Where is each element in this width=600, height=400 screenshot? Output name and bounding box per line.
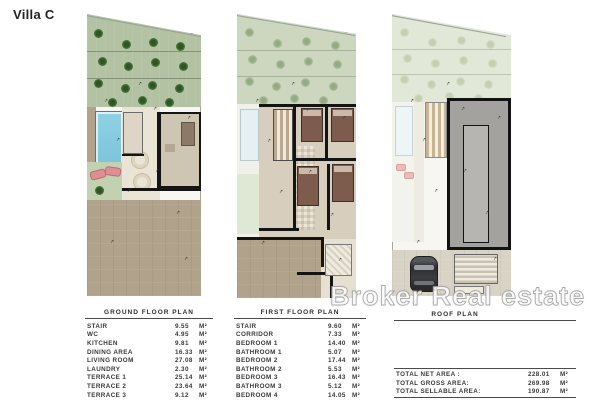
elevation-marker-icon: ↗ <box>260 241 265 247</box>
table-icon <box>165 144 175 152</box>
room-label: BEDROOM 1 <box>234 340 328 347</box>
wall <box>297 272 325 275</box>
area-row: BATHROOM 35.12M² <box>234 382 366 391</box>
tree-icon <box>403 54 412 63</box>
area-value: 9.12 <box>175 392 199 399</box>
garden-area <box>87 14 201 107</box>
area-row: BATHROOM 25.53M² <box>234 365 366 374</box>
tree-icon <box>273 39 282 48</box>
room-label: STAIR <box>85 323 175 330</box>
elevation-marker-icon: ↗ <box>184 256 189 262</box>
area-unit: M² <box>199 331 213 338</box>
area-row: TERRACE 125.14M² <box>85 374 213 383</box>
staircase <box>273 109 293 161</box>
area-row: LAUNDRY2.30M² <box>85 365 213 374</box>
tree-icon <box>290 94 299 103</box>
room-label: STAIR <box>234 323 328 330</box>
room-label: BATHROOM 1 <box>234 349 328 356</box>
area-unit: M² <box>199 340 213 347</box>
room-label: TOTAL SELLABLE AREA: <box>394 388 528 395</box>
tree-icon <box>302 37 311 46</box>
area-row: TERRACE 39.12M² <box>85 391 213 400</box>
elevation-marker-icon: ↗ <box>127 189 132 195</box>
table-rule <box>85 318 213 319</box>
tree-icon <box>488 59 497 68</box>
area-row: LIVING ROOM27.08M² <box>85 356 213 365</box>
tree-icon <box>122 40 131 49</box>
room-label: BATHROOM 2 <box>234 366 328 373</box>
bed-icon <box>332 164 354 202</box>
area-unit: M² <box>199 374 213 381</box>
tree-icon <box>176 42 185 51</box>
ground-floor-plan-drawing: ↗↗↗↗↗↗↗↗↗↗ <box>87 14 201 296</box>
tree-icon <box>175 84 184 93</box>
room-label: BATHROOM 3 <box>234 383 328 390</box>
totals-box: TOTAL NET AREA :228.01M²TOTAL GROSS AREA… <box>394 368 576 398</box>
tree-icon <box>431 59 440 68</box>
area-unit: M² <box>352 392 366 399</box>
tree-icon <box>459 56 468 65</box>
table-title: ROOF PLAN <box>394 311 576 318</box>
area-rows: STAIR9.55M²WC4.95M²KITCHEN9.81M²DINING A… <box>85 322 213 399</box>
elevation-marker-icon: ↗ <box>433 189 438 195</box>
tree-icon <box>188 25 197 34</box>
area-row: DINING AREA16.33M² <box>85 348 213 357</box>
lawn-patch-below <box>237 174 259 234</box>
area-unit: M² <box>199 357 213 364</box>
lawn-patch <box>87 162 122 200</box>
elevation-marker-icon: ↗ <box>410 98 415 104</box>
elevation-marker-icon: ↗ <box>255 99 260 105</box>
sofa-icon <box>181 122 195 146</box>
tree-icon <box>329 82 338 91</box>
area-value: 14.40 <box>328 340 352 347</box>
sun-lounger-icon <box>104 166 121 177</box>
tree-icon <box>304 57 313 66</box>
living-room <box>159 112 201 188</box>
area-value: 23.64 <box>175 383 199 390</box>
room-label: TERRACE 3 <box>85 392 175 399</box>
room-label: CORRIDOR <box>234 331 328 338</box>
tree-icon <box>400 28 409 37</box>
area-row: TOTAL SELLABLE AREA:190.87M² <box>394 387 576 395</box>
area-row: BEDROOM 316.43M² <box>234 374 366 383</box>
tree-icon <box>148 81 157 90</box>
elevation-marker-icon: ↗ <box>306 107 311 113</box>
wall <box>122 188 201 191</box>
area-unit: M² <box>352 331 366 338</box>
tree-icon <box>165 98 174 107</box>
room-label: TERRACE 2 <box>85 383 175 390</box>
tree-icon <box>245 28 254 37</box>
table-title: GROUND FLOOR PLAN <box>85 309 213 316</box>
elevation-marker-icon: ↗ <box>421 138 426 144</box>
wall <box>122 154 144 156</box>
elevation-marker-icon: ↗ <box>104 98 109 104</box>
tree-icon <box>248 55 257 64</box>
room-label: TOTAL NET AREA : <box>394 371 528 378</box>
area-value: 27.08 <box>175 357 199 364</box>
roof-slab <box>447 98 511 250</box>
kitchen-room <box>123 112 143 154</box>
area-value: 5.53 <box>328 366 352 373</box>
area-value: 4.95 <box>175 331 199 338</box>
area-value: 2.30 <box>175 366 199 373</box>
terrace-roof-below <box>237 239 321 298</box>
tree-icon <box>151 58 160 67</box>
floor-plan-sheet: Villa C ↗↗↗↗↗↗↗↗↗↗ <box>0 0 600 400</box>
area-unit: M² <box>352 366 366 373</box>
watermark: Broker Real estate <box>330 281 585 312</box>
area-unit: M² <box>352 340 366 347</box>
tree-icon <box>98 57 107 66</box>
garden-area-faded <box>237 14 356 104</box>
exterior-stairs <box>454 254 498 284</box>
room-label: DINING AREA <box>85 349 175 356</box>
elevation-marker-icon: ↗ <box>493 256 498 262</box>
tree-icon <box>94 79 103 88</box>
elevation-marker-icon: ↗ <box>496 115 501 121</box>
area-unit: M² <box>352 323 366 330</box>
tree-icon <box>121 84 130 93</box>
room-label: BEDROOM 2 <box>234 357 328 364</box>
area-row: CORRIDOR7.33M² <box>234 331 366 340</box>
tree-icon <box>497 24 506 33</box>
area-unit: M² <box>199 392 213 399</box>
area-unit: M² <box>199 366 213 373</box>
area-row: WC4.95M² <box>85 331 213 340</box>
area-value: 228.01 <box>528 371 560 378</box>
elevation-marker-icon: ↗ <box>266 139 271 145</box>
tree-icon <box>272 82 281 91</box>
elevation-marker-icon: ↗ <box>278 190 283 196</box>
wall <box>325 104 328 160</box>
elevation-marker-icon: ↗ <box>445 81 450 87</box>
area-row: STAIR9.60M² <box>234 322 366 331</box>
area-value: 17.44 <box>328 357 352 364</box>
tree-icon <box>138 96 147 105</box>
first-floor-plan-drawing: ↗↗↗↗↗↗↗↗↗↗ <box>237 14 356 298</box>
first-floor-area-table: FIRST FLOOR PLAN STAIR9.60M²CORRIDOR7.33… <box>234 309 366 400</box>
wall <box>293 158 356 161</box>
area-unit: M² <box>199 349 213 356</box>
tree-icon <box>95 186 104 195</box>
ground-floor-area-table: GROUND FLOOR PLAN STAIR9.55M²WC4.95M²KIT… <box>85 309 213 399</box>
wall <box>321 237 324 267</box>
elevation-marker-icon: ↗ <box>290 82 295 88</box>
area-value: 7.33 <box>328 331 352 338</box>
tree-icon <box>342 24 351 33</box>
area-row: STAIR9.55M² <box>85 322 213 331</box>
room-label: TOTAL GROSS AREA: <box>394 380 528 387</box>
tree-icon <box>245 77 254 86</box>
room-label: BEDROOM 3 <box>234 374 328 381</box>
area-value: 9.55 <box>175 323 199 330</box>
room-label: LAUNDRY <box>85 366 175 373</box>
elevation-marker-icon: ↗ <box>341 116 346 122</box>
elevation-marker-icon: ↗ <box>338 258 343 264</box>
room-label: WC <box>85 331 175 338</box>
sun-lounger-icon <box>404 172 414 179</box>
tree-icon <box>301 78 310 87</box>
pergola-slats <box>425 102 447 158</box>
table-rule <box>394 320 576 321</box>
wall <box>293 104 296 230</box>
area-value: 190.87 <box>528 388 560 395</box>
tree-icon <box>457 36 466 45</box>
elevation-marker-icon: ↗ <box>153 107 158 113</box>
tree-icon <box>179 62 188 71</box>
tree-icon <box>484 80 493 89</box>
driveway-terrace <box>87 200 201 296</box>
area-unit: M² <box>199 323 213 330</box>
side-strip <box>414 102 424 242</box>
tree-icon <box>276 60 285 69</box>
area-unit: M² <box>560 371 576 378</box>
tree-icon <box>400 75 409 84</box>
swimming-pool-below <box>240 109 259 161</box>
area-unit: M² <box>560 388 576 395</box>
tree-icon <box>331 41 340 50</box>
page-title: Villa C <box>13 7 55 22</box>
wall <box>157 112 160 190</box>
swimming-pool-below <box>395 106 413 156</box>
tree-icon <box>486 40 495 49</box>
area-value: 5.12 <box>328 383 352 390</box>
tree-icon <box>149 38 158 47</box>
area-row: TOTAL NET AREA :228.01M² <box>394 371 576 379</box>
bed-icon <box>331 108 354 142</box>
area-value: 16.33 <box>175 349 199 356</box>
tree-icon <box>124 62 133 71</box>
room-label: BEDROOM 4 <box>234 392 328 399</box>
bed-icon <box>301 108 323 142</box>
area-unit: M² <box>352 357 366 364</box>
table-rule <box>234 318 366 319</box>
area-row: KITCHEN9.81M² <box>85 339 213 348</box>
area-value: 25.14 <box>175 374 199 381</box>
area-row: BEDROOM 414.05M² <box>234 391 366 400</box>
tree-icon <box>456 77 465 86</box>
tree-icon <box>427 80 436 89</box>
area-value: 9.60 <box>328 323 352 330</box>
room-label: LIVING ROOM <box>85 357 175 364</box>
elevation-marker-icon: ↗ <box>329 213 334 219</box>
area-unit: M² <box>560 380 576 387</box>
tree-icon <box>333 60 342 69</box>
tree-icon <box>108 98 117 107</box>
roof-plan-table: ROOF PLAN TOTAL NET AREA :228.01M²TOTAL … <box>394 311 576 391</box>
elevation-marker-icon: ↗ <box>109 239 114 245</box>
roof-plan-drawing: ↗↗↗↗↗↗↗↗↗↗ <box>392 14 511 296</box>
area-row: BATHROOM 15.07M² <box>234 348 366 357</box>
area-row: BEDROOM 217.44M² <box>234 356 366 365</box>
roof-skylight <box>463 125 489 243</box>
area-value: 269.98 <box>528 380 560 387</box>
elevation-marker-icon: ↗ <box>461 107 466 113</box>
area-value: 9.81 <box>175 340 199 347</box>
tree-icon <box>428 38 437 47</box>
sun-lounger-icon <box>396 164 406 171</box>
area-unit: M² <box>199 383 213 390</box>
area-row: TERRACE 223.64M² <box>85 382 213 391</box>
area-unit: M² <box>352 349 366 356</box>
wall <box>327 164 330 230</box>
room-label: TERRACE 1 <box>85 374 175 381</box>
area-value: 16.43 <box>328 374 352 381</box>
elevation-marker-icon: ↗ <box>415 239 420 245</box>
area-rows: STAIR9.60M²CORRIDOR7.33M²BEDROOM 114.40M… <box>234 322 366 400</box>
area-unit: M² <box>352 374 366 381</box>
room-label: KITCHEN <box>85 340 175 347</box>
area-value: 14.05 <box>328 392 352 399</box>
area-row: BEDROOM 114.40M² <box>234 339 366 348</box>
tree-icon <box>94 29 103 38</box>
area-value: 5.07 <box>328 349 352 356</box>
area-unit: M² <box>352 383 366 390</box>
elevation-marker-icon: ↗ <box>115 138 120 144</box>
wall <box>237 237 323 240</box>
wall <box>259 228 299 231</box>
area-row: TOTAL GROSS AREA:269.98M² <box>394 379 576 387</box>
